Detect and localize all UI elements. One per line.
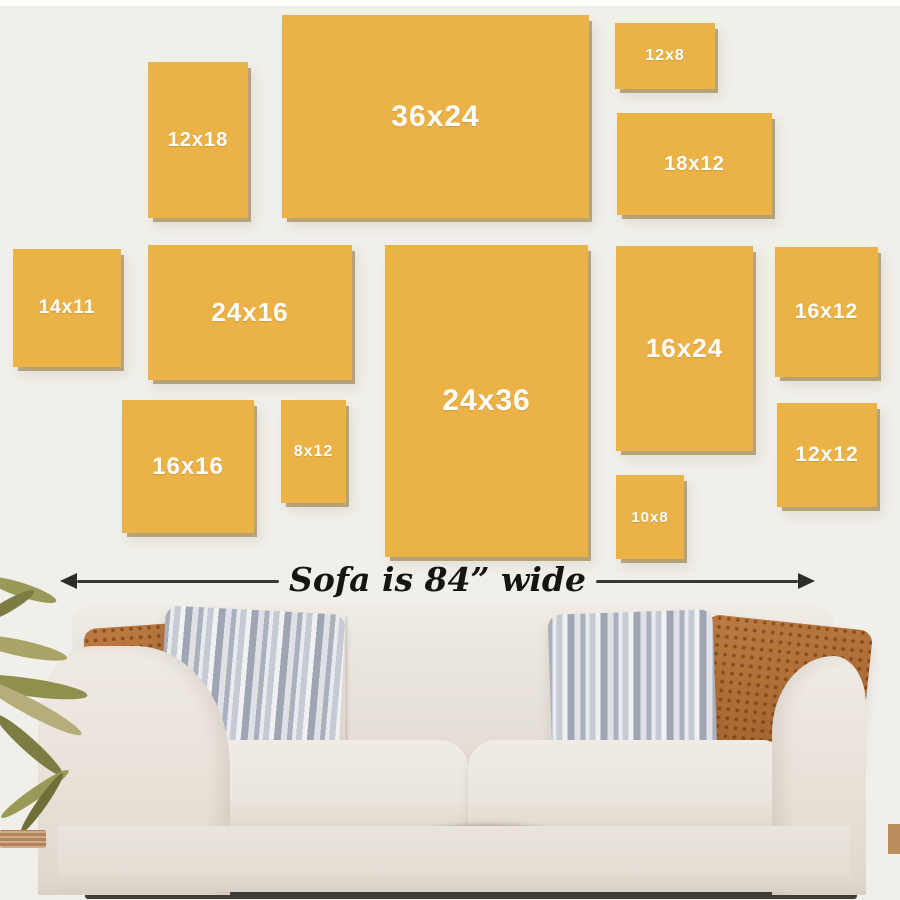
canvas-14x11: 14x11 xyxy=(13,249,121,367)
canvas-size-label: 36x24 xyxy=(391,100,479,134)
canvas-size-label: 12x12 xyxy=(795,443,858,467)
sofa-seat-cushion-right xyxy=(468,740,790,837)
canvas-size-label: 16x24 xyxy=(646,333,723,364)
canvas-12x8: 12x8 xyxy=(615,23,715,89)
canvas-size-label: 14x11 xyxy=(39,297,96,319)
canvas-size-label: 12x18 xyxy=(168,129,229,152)
sofa-width-label: Sofa is 84” wide xyxy=(289,560,586,599)
canvas-24x36: 24x36 xyxy=(385,245,588,557)
arrow-line-left xyxy=(77,580,279,583)
wall-art-size-guide-image: 12x1836x2412x818x1214x1124x1624x3616x241… xyxy=(0,0,900,900)
canvas-size-label: 16x16 xyxy=(152,453,224,481)
sofa-back-seam xyxy=(345,616,348,751)
sofa-seat-cushion-left xyxy=(205,740,468,837)
canvas-size-label: 24x16 xyxy=(211,297,288,328)
basket-edge xyxy=(0,830,46,848)
canvas-size-label: 16x12 xyxy=(795,300,858,324)
pillow-striped-right xyxy=(548,609,718,760)
canvas-16x12: 16x12 xyxy=(775,247,878,377)
canvas-size-label: 24x36 xyxy=(442,384,530,418)
canvas-16x24: 16x24 xyxy=(616,246,753,451)
sofa-base xyxy=(58,826,850,892)
wood-floor-sliver xyxy=(888,824,900,854)
canvas-size-label: 12x8 xyxy=(645,47,685,65)
top-margin xyxy=(0,0,900,6)
canvas-size-label: 8x12 xyxy=(294,443,334,461)
canvas-10x8: 10x8 xyxy=(616,475,684,559)
canvas-16x16: 16x16 xyxy=(122,400,254,533)
canvas-8x12: 8x12 xyxy=(281,400,346,503)
canvas-size-label: 10x8 xyxy=(631,509,668,526)
arrow-right-icon xyxy=(798,573,815,589)
canvas-12x12: 12x12 xyxy=(777,403,877,507)
arrow-left-icon xyxy=(60,573,77,589)
canvas-24x16: 24x16 xyxy=(148,245,352,380)
canvas-36x24: 36x24 xyxy=(282,15,589,218)
canvas-18x12: 18x12 xyxy=(617,113,772,215)
canvas-12x18: 12x18 xyxy=(148,62,248,218)
arrow-line-right xyxy=(596,580,798,583)
sofa-width-annotation: Sofa is 84” wide xyxy=(60,557,815,605)
canvas-size-label: 18x12 xyxy=(664,153,725,176)
